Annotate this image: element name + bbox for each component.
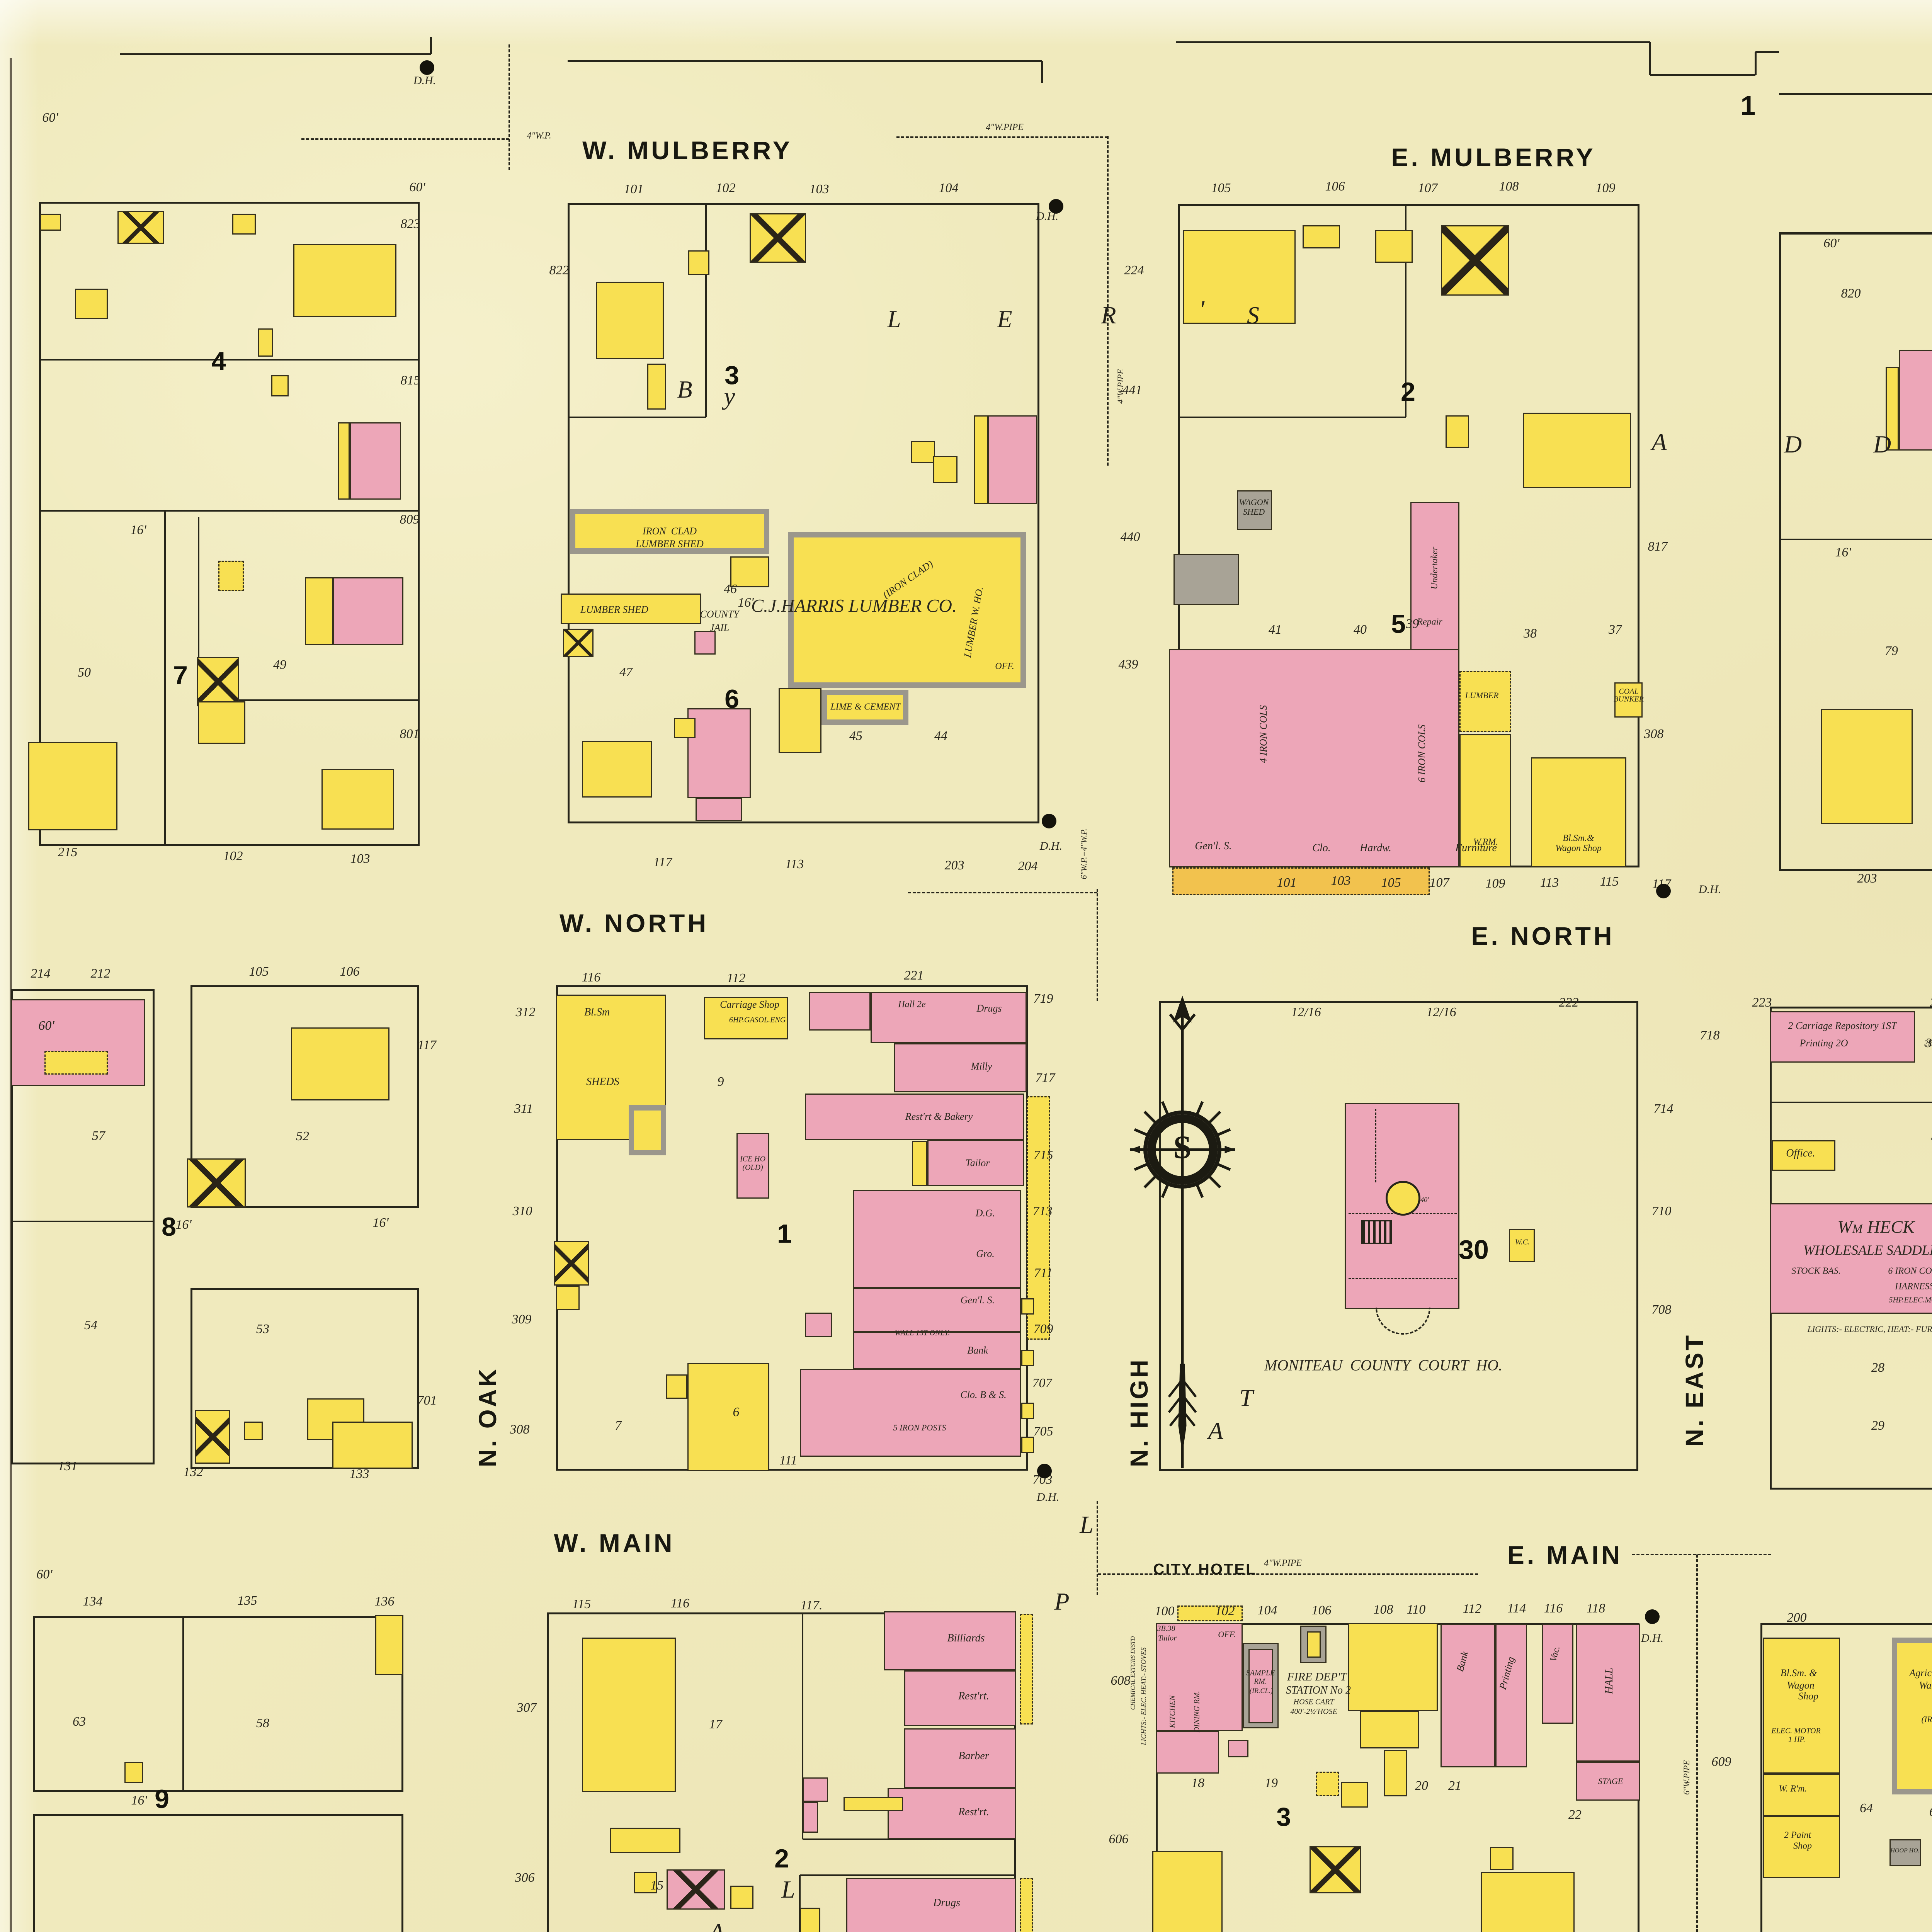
- svg-text:S: S: [1173, 1129, 1191, 1165]
